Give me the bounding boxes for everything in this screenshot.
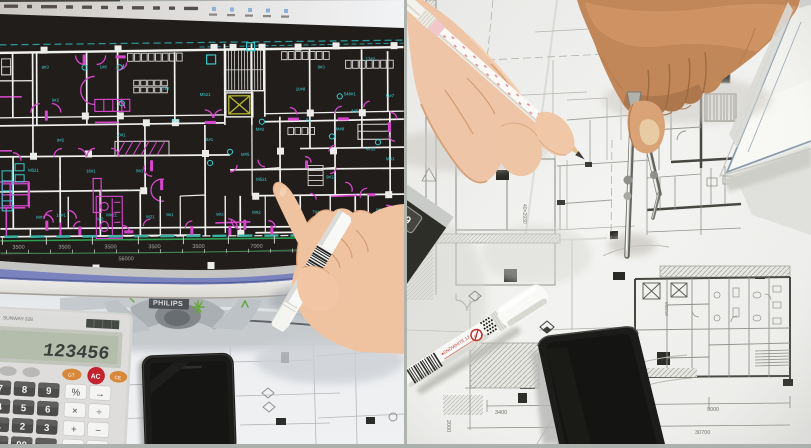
svg-text:9#2: 9#2: [52, 98, 60, 103]
svg-text:3500: 3500: [12, 245, 24, 251]
svg-text:17#3: 17#3: [160, 86, 170, 91]
svg-text:8#2: 8#2: [57, 138, 65, 143]
svg-text:10#8: 10#8: [296, 87, 306, 92]
svg-text:M#2: M#2: [252, 210, 261, 215]
svg-text:18#1: 18#1: [56, 213, 66, 218]
svg-text:9#1: 9#1: [166, 212, 174, 217]
svg-text:8#3: 8#3: [318, 64, 326, 69]
svg-text:2: 2: [20, 421, 26, 432]
svg-text:M521: M521: [28, 168, 39, 173]
svg-text:M21: M21: [172, 118, 181, 123]
svg-text:9#3: 9#3: [216, 212, 224, 217]
svg-text:M#2: M#2: [256, 127, 265, 132]
svg-text:3500: 3500: [192, 244, 204, 250]
svg-text:123456: 123456: [41, 341, 111, 365]
svg-text:1#8: 1#8: [100, 64, 108, 69]
svg-text:548#1: 548#1: [344, 91, 357, 96]
svg-text:M#1: M#1: [386, 156, 395, 161]
svg-text:AC: AC: [91, 373, 101, 381]
svg-text:10#1: 10#1: [116, 132, 126, 137]
svg-text:4#8: 4#8: [351, 108, 359, 113]
svg-text:M521: M521: [256, 177, 267, 182]
svg-text:M21: M21: [146, 214, 155, 219]
svg-text:5#1: 5#1: [206, 137, 214, 142]
svg-text:M521: M521: [200, 92, 211, 97]
svg-text:M#8: M#8: [336, 126, 345, 131]
svg-text:M#5: M#5: [241, 152, 250, 157]
svg-text:CE: CE: [114, 375, 122, 381]
svg-text:7000: 7000: [250, 244, 262, 250]
svg-text:M#7: M#7: [386, 93, 395, 98]
svg-text:PHILIPS: PHILIPS: [153, 298, 183, 308]
svg-text:3500: 3500: [148, 244, 160, 250]
svg-text:3500: 3500: [104, 244, 116, 250]
svg-text:+: +: [71, 424, 78, 435]
svg-text:B1: B1: [306, 118, 312, 123]
svg-text:−: −: [95, 425, 102, 436]
svg-text:8#3: 8#3: [42, 65, 50, 70]
svg-text:%: %: [71, 387, 81, 398]
svg-text:→: →: [95, 389, 105, 400]
svg-text:3500: 3500: [58, 245, 70, 251]
svg-text:8#2: 8#2: [96, 216, 104, 221]
svg-text:8#1: 8#1: [136, 168, 144, 173]
svg-text:6#12: 6#12: [366, 146, 376, 151]
svg-text:9#12: 9#12: [326, 174, 336, 179]
svg-text:GT: GT: [68, 373, 75, 379]
svg-text:56000: 56000: [118, 256, 133, 262]
svg-text:16#1: 16#1: [86, 168, 96, 173]
svg-text:17#2: 17#2: [366, 56, 376, 61]
svg-text:×: ×: [72, 406, 78, 417]
